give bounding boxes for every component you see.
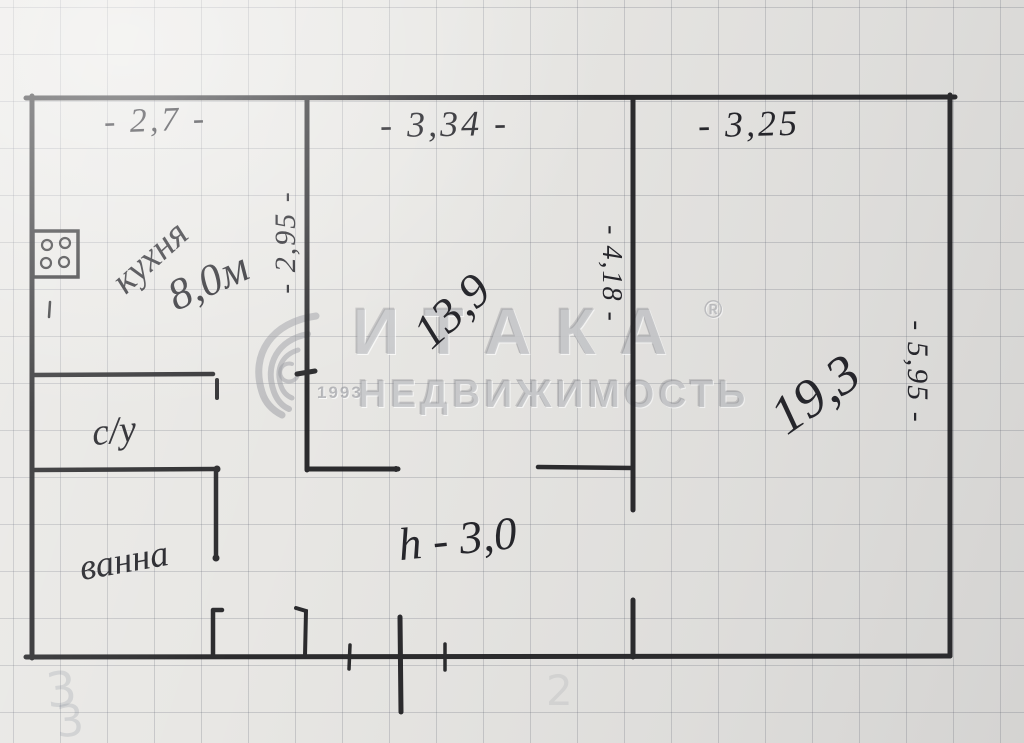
dim-hall-width: - 3,34 - <box>380 102 510 146</box>
floor-plan-photo: ИТАКА ® 1993 НЕДВИЖИМОСТЬ <box>0 0 1024 743</box>
room-label-wc: с/у <box>90 407 139 455</box>
dim-room-wall: - 5,95 - <box>900 320 934 423</box>
dim-kitchen-wall: - 2,95 - <box>269 190 303 293</box>
wall-wc-bottom <box>32 469 216 470</box>
dimension-tick <box>297 371 315 374</box>
small-tick <box>49 302 50 317</box>
entrance-door-line <box>400 617 401 712</box>
wall-bath-right-lower <box>213 610 222 656</box>
wall-top <box>26 97 955 98</box>
ghost-mark: 3 <box>54 695 85 743</box>
door-jamb-entry-right <box>296 608 306 656</box>
dim-hall-wall: - 4,18 - <box>595 225 627 323</box>
wall-hall-bottom-right <box>538 467 633 468</box>
dim-kitchen-width: - 2,7 - <box>103 100 207 142</box>
entrance-tick-left <box>349 645 350 669</box>
wall-bottom <box>26 656 950 657</box>
wall-kitchen-bottom <box>32 374 213 375</box>
stove-icon <box>33 231 78 277</box>
wall-end-dot <box>213 555 220 562</box>
ghost-mark: 2 <box>546 666 573 715</box>
wall-end-dot <box>393 466 399 472</box>
dim-room-width: - 3,25 <box>697 102 800 147</box>
